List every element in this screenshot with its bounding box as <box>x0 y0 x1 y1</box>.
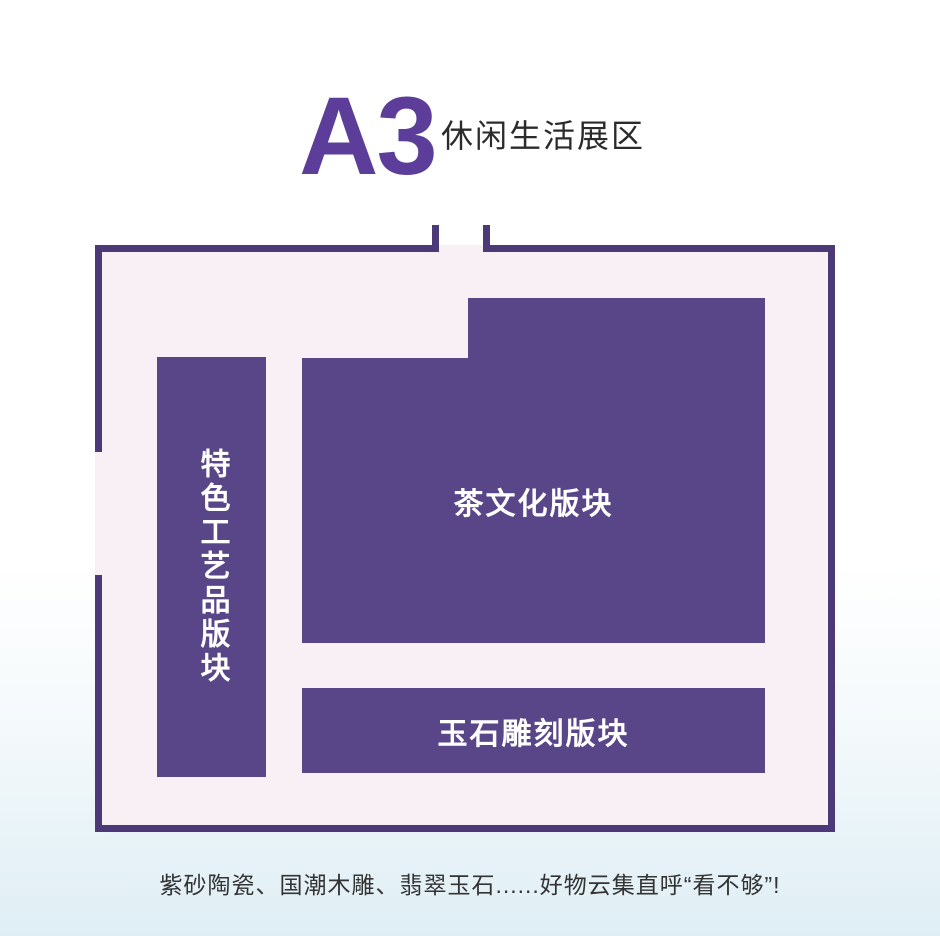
entrance-jamb-left <box>432 225 439 252</box>
section-tea-extension <box>468 298 765 359</box>
wall-top-right <box>483 245 835 252</box>
wall-top-left <box>95 245 439 252</box>
section-tea-label: 茶文化版块 <box>454 479 614 523</box>
section-jade: 玉石雕刻版块 <box>302 688 765 773</box>
zone-code: A3 <box>299 82 436 192</box>
section-tea: 茶文化版块 <box>302 358 765 643</box>
entrance-jamb-right <box>483 225 490 252</box>
caption: 紫砂陶瓷、国潮木雕、翡翠玉石......好物云集直呼“看不够”! <box>0 866 940 900</box>
section-jade-label: 玉石雕刻版块 <box>438 709 630 753</box>
section-crafts-label: 特色工艺品版块 <box>190 448 234 686</box>
floorplan: A3 休闲生活展区 特色工艺品版块 茶文化版块 玉石雕刻版块 紫砂陶瓷、国潮木雕… <box>0 0 940 936</box>
section-crafts: 特色工艺品版块 <box>157 357 266 777</box>
wall-bottom <box>95 825 835 832</box>
wall-left-upper <box>95 245 102 452</box>
wall-right <box>828 245 835 832</box>
wall-left-lower <box>95 575 102 832</box>
zone-name: 休闲生活展区 <box>441 117 645 155</box>
